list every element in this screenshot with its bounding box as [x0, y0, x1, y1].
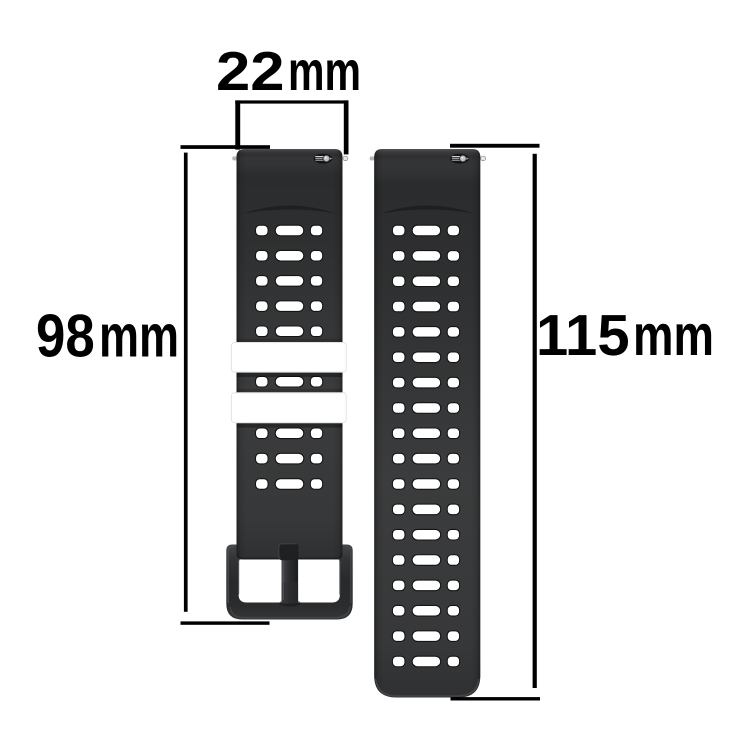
svg-text:22: 22	[216, 41, 285, 102]
svg-text:115: 115	[536, 303, 630, 368]
svg-text:mm: mm	[633, 304, 714, 369]
svg-text:98: 98	[36, 302, 95, 369]
svg-text:mm: mm	[99, 303, 179, 370]
svg-text:mm: mm	[288, 41, 361, 103]
